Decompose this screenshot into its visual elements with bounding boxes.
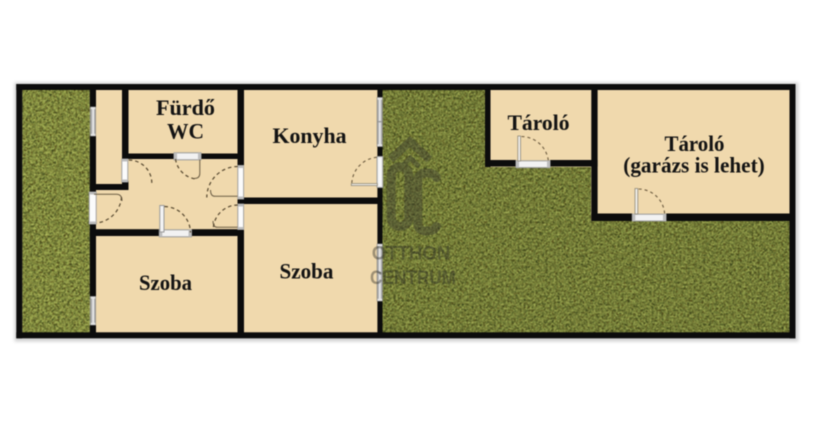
svg-text:Szoba: Szoba bbox=[280, 259, 334, 284]
svg-text:Fürdő: Fürdő bbox=[156, 95, 215, 120]
svg-text:Tároló: Tároló bbox=[508, 110, 570, 135]
svg-text:WC: WC bbox=[167, 119, 204, 144]
svg-text:Szoba: Szoba bbox=[139, 270, 192, 295]
svg-text:OTTHON: OTTHON bbox=[372, 244, 451, 265]
svg-text:(garázs is lehet): (garázs is lehet) bbox=[623, 153, 765, 178]
svg-text:Konyha: Konyha bbox=[273, 123, 347, 148]
svg-text:CENTRUM: CENTRUM bbox=[370, 268, 456, 289]
